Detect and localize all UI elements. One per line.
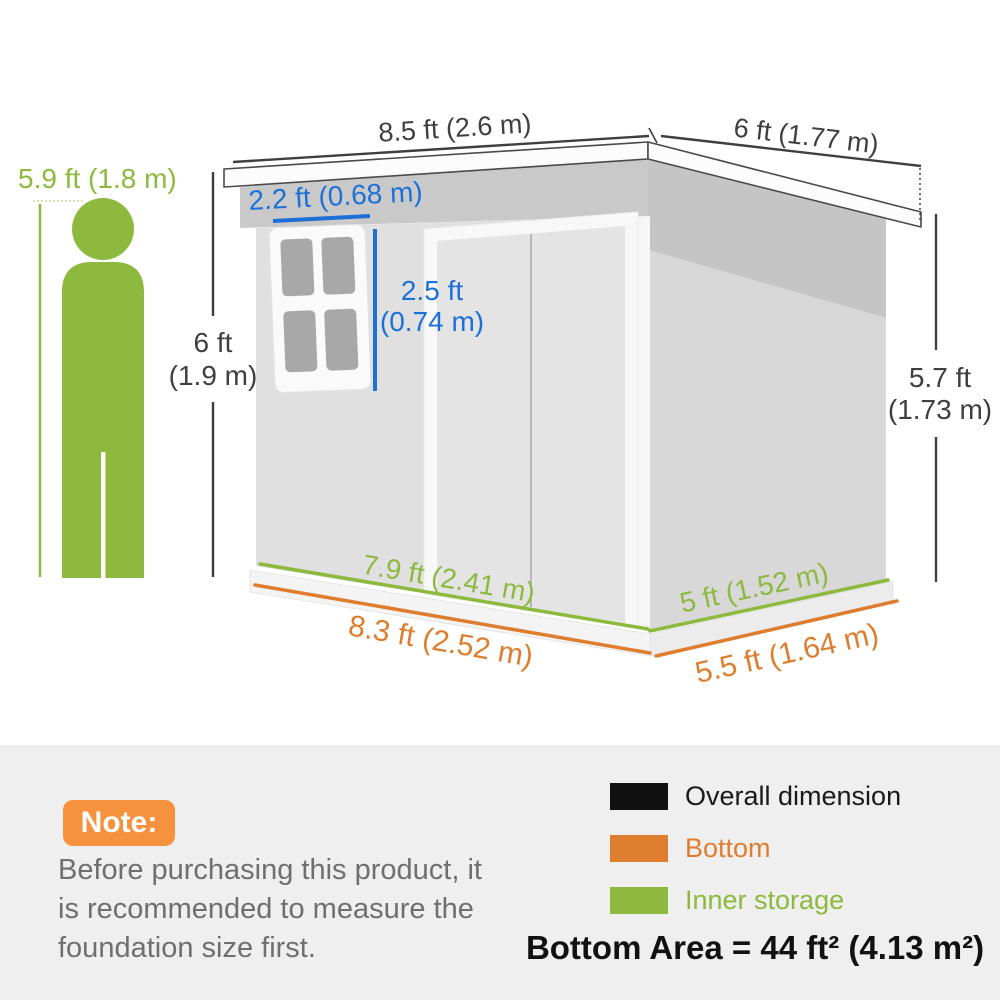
legend-swatch-bottom [610, 835, 668, 862]
legend-label-overall: Overall dimension [685, 781, 901, 812]
person-height-label: 5.9 ft (1.8 m) [18, 163, 177, 194]
window-pane [321, 237, 355, 295]
legend: Overall dimension Bottom Inner storage [610, 783, 901, 939]
bottom-area-text: Bottom Area = 44 ft² (4.13 m²) [526, 929, 984, 967]
note-badge: Note: [63, 800, 175, 846]
legend-label-bottom: Bottom [685, 833, 771, 864]
window-height-label-m: (0.74 m) [380, 306, 484, 337]
human-figure: 5.9 ft (1.8 m) [18, 163, 177, 578]
note-line: Before purchasing this product, it [58, 851, 482, 890]
legend-item-inner: Inner storage [610, 887, 901, 914]
window-height-label-ft: 2.5 ft [401, 275, 463, 306]
person-leg-gap [101, 452, 106, 578]
shed-diagram-svg: 5.9 ft (1.8 m) [0, 0, 1000, 745]
legend-swatch-inner [610, 887, 668, 914]
note-badge-label: Note: [81, 806, 158, 840]
window-pane [283, 310, 317, 372]
note-line: foundation size first. [58, 929, 482, 968]
rear-height-label-m: (1.73 m) [888, 394, 992, 425]
legend-item-bottom: Bottom [610, 835, 901, 862]
window [269, 224, 372, 393]
legend-item-overall: Overall dimension [610, 783, 901, 810]
note-line: is recommended to measure the [58, 890, 482, 929]
window-pane [280, 238, 314, 296]
front-height-label-m: (1.9 m) [169, 360, 258, 391]
rear-height-label-ft: 5.7 ft [909, 362, 971, 393]
front-height-label-ft: 6 ft [194, 327, 233, 358]
window-pane [324, 309, 358, 371]
info-panel: Note: Before purchasing this product, it… [0, 745, 1000, 1000]
legend-swatch-overall [610, 783, 668, 810]
roof-width-label: 8.5 ft (2.6 m) [378, 108, 533, 148]
note-text: Before purchasing this product, it is re… [58, 851, 482, 968]
shed-dimension-infographic: 5.9 ft (1.8 m) [0, 0, 1000, 1000]
roof-dim-tick [649, 128, 657, 143]
legend-label-inner: Inner storage [685, 885, 844, 916]
diagram-area: 5.9 ft (1.8 m) [0, 0, 1000, 745]
person-head [72, 198, 134, 260]
